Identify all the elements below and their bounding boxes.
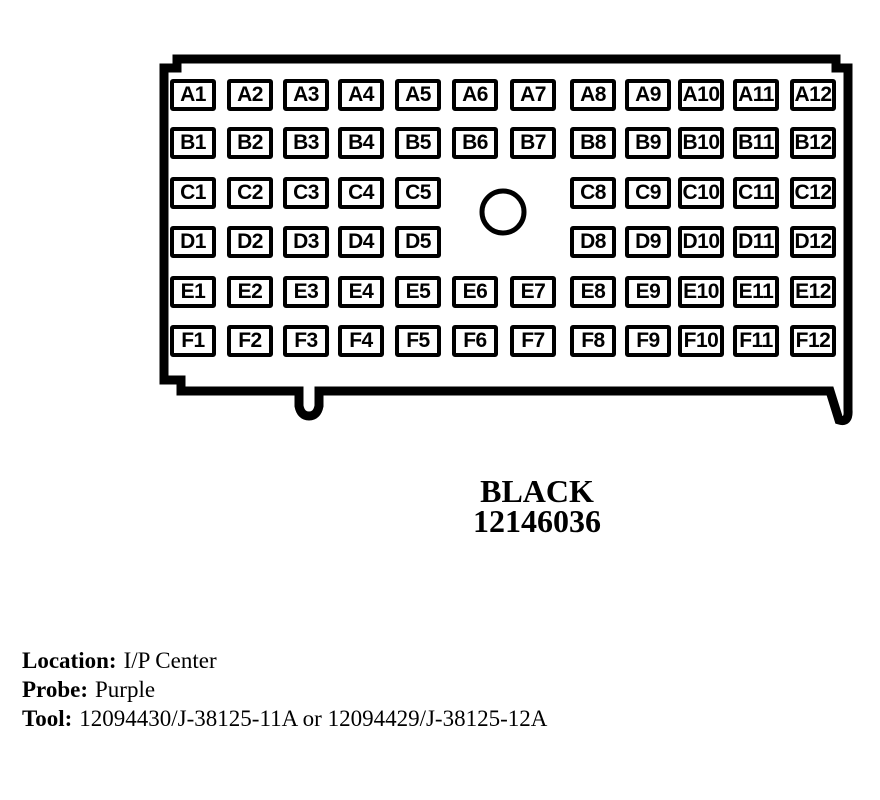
pin-B8: B8 (570, 127, 616, 159)
pin-C2: C2 (227, 177, 273, 209)
pin-A7: A7 (510, 79, 556, 111)
tool-value: 12094430/J-38125-11A or 12094429/J-38125… (79, 706, 547, 731)
probe-value: Purple (95, 677, 155, 702)
pin-A10: A10 (678, 79, 724, 111)
pin-F8: F8 (570, 325, 616, 357)
pin-A3: A3 (283, 79, 329, 111)
pin-F10: F10 (678, 325, 724, 357)
pin-F6: F6 (452, 325, 498, 357)
pin-F9: F9 (625, 325, 671, 357)
pin-A9: A9 (625, 79, 671, 111)
pin-D5: D5 (395, 226, 441, 258)
pin-B7: B7 (510, 127, 556, 159)
pin-C10: C10 (678, 177, 724, 209)
pin-B11: B11 (733, 127, 779, 159)
pin-F11: F11 (733, 325, 779, 357)
pin-D4: D4 (338, 226, 384, 258)
pin-C9: C9 (625, 177, 671, 209)
pin-C1: C1 (170, 177, 216, 209)
location-label: Location: (22, 648, 117, 673)
location-line: Location:I/P Center (22, 646, 547, 675)
pin-E10: E10 (678, 276, 724, 308)
pin-B10: B10 (678, 127, 724, 159)
pin-B5: B5 (395, 127, 441, 159)
pin-E9: E9 (625, 276, 671, 308)
pin-B3: B3 (283, 127, 329, 159)
pin-D9: D9 (625, 226, 671, 258)
probe-label: Probe: (22, 677, 88, 702)
pin-E7: E7 (510, 276, 556, 308)
pin-F4: F4 (338, 325, 384, 357)
location-value: I/P Center (124, 648, 217, 673)
pin-E3: E3 (283, 276, 329, 308)
pin-E11: E11 (733, 276, 779, 308)
pin-A11: A11 (733, 79, 779, 111)
pin-D2: D2 (227, 226, 273, 258)
connector-details: Location:I/P Center Probe:Purple Tool:12… (22, 646, 547, 733)
pin-A12: A12 (790, 79, 836, 111)
pin-B12: B12 (790, 127, 836, 159)
pin-D10: D10 (678, 226, 724, 258)
pin-D12: D12 (790, 226, 836, 258)
pin-C8: C8 (570, 177, 616, 209)
pin-C11: C11 (733, 177, 779, 209)
pin-B1: B1 (170, 127, 216, 159)
pin-B9: B9 (625, 127, 671, 159)
pin-D11: D11 (733, 226, 779, 258)
pin-F3: F3 (283, 325, 329, 357)
tool-line: Tool:12094430/J-38125-11A or 12094429/J-… (22, 704, 547, 733)
pin-A1: A1 (170, 79, 216, 111)
pin-A2: A2 (227, 79, 273, 111)
pin-B2: B2 (227, 127, 273, 159)
pin-E5: E5 (395, 276, 441, 308)
pin-C3: C3 (283, 177, 329, 209)
pin-C12: C12 (790, 177, 836, 209)
connector-title: BLACK 12146036 (473, 476, 601, 536)
pin-A4: A4 (338, 79, 384, 111)
pin-E12: E12 (790, 276, 836, 308)
pin-A8: A8 (570, 79, 616, 111)
pin-E6: E6 (452, 276, 498, 308)
pin-C5: C5 (395, 177, 441, 209)
tool-label: Tool: (22, 706, 72, 731)
connector-color-label: BLACK (473, 476, 601, 506)
pin-F5: F5 (395, 325, 441, 357)
pin-F7: F7 (510, 325, 556, 357)
pin-D3: D3 (283, 226, 329, 258)
guide-hole-icon (482, 191, 524, 233)
pin-F1: F1 (170, 325, 216, 357)
pin-D1: D1 (170, 226, 216, 258)
pin-A5: A5 (395, 79, 441, 111)
pin-E2: E2 (227, 276, 273, 308)
pin-E8: E8 (570, 276, 616, 308)
pin-B4: B4 (338, 127, 384, 159)
connector-diagram: A1A2A3A4A5A6A7A8A9A10A11A12B1B2B3B4B5B6B… (0, 0, 880, 460)
pin-E1: E1 (170, 276, 216, 308)
probe-line: Probe:Purple (22, 675, 547, 704)
pin-F2: F2 (227, 325, 273, 357)
connector-part-number: 12146036 (473, 506, 601, 536)
pin-D8: D8 (570, 226, 616, 258)
pin-C4: C4 (338, 177, 384, 209)
pin-E4: E4 (338, 276, 384, 308)
pin-F12: F12 (790, 325, 836, 357)
pin-A6: A6 (452, 79, 498, 111)
pin-B6: B6 (452, 127, 498, 159)
